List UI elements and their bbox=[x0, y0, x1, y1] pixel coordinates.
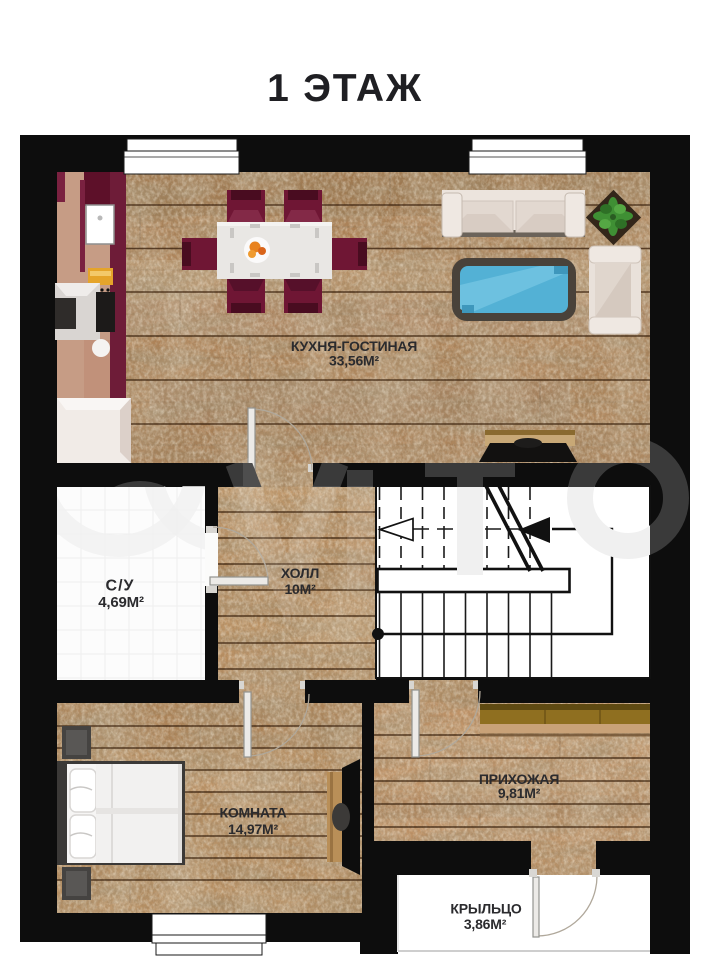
svg-text:КОМНАТА: КОМНАТА bbox=[219, 805, 286, 821]
svg-text:14,97М²: 14,97М² bbox=[228, 821, 278, 837]
svg-text:9,81М²: 9,81М² bbox=[498, 785, 541, 801]
svg-text:С/У: С/У bbox=[106, 578, 135, 595]
svg-text:1 ЭТАЖ: 1 ЭТАЖ bbox=[267, 67, 423, 110]
svg-text:3,86М²: 3,86М² bbox=[464, 916, 507, 932]
svg-text:ХОЛЛ: ХОЛЛ bbox=[281, 565, 319, 581]
svg-text:КРЫЛЬЦО: КРЫЛЬЦО bbox=[450, 901, 522, 917]
svg-text:4,69М²: 4,69М² bbox=[98, 594, 144, 611]
svg-text:10М²: 10М² bbox=[284, 581, 316, 597]
svg-text:33,56М²: 33,56М² bbox=[329, 353, 379, 369]
